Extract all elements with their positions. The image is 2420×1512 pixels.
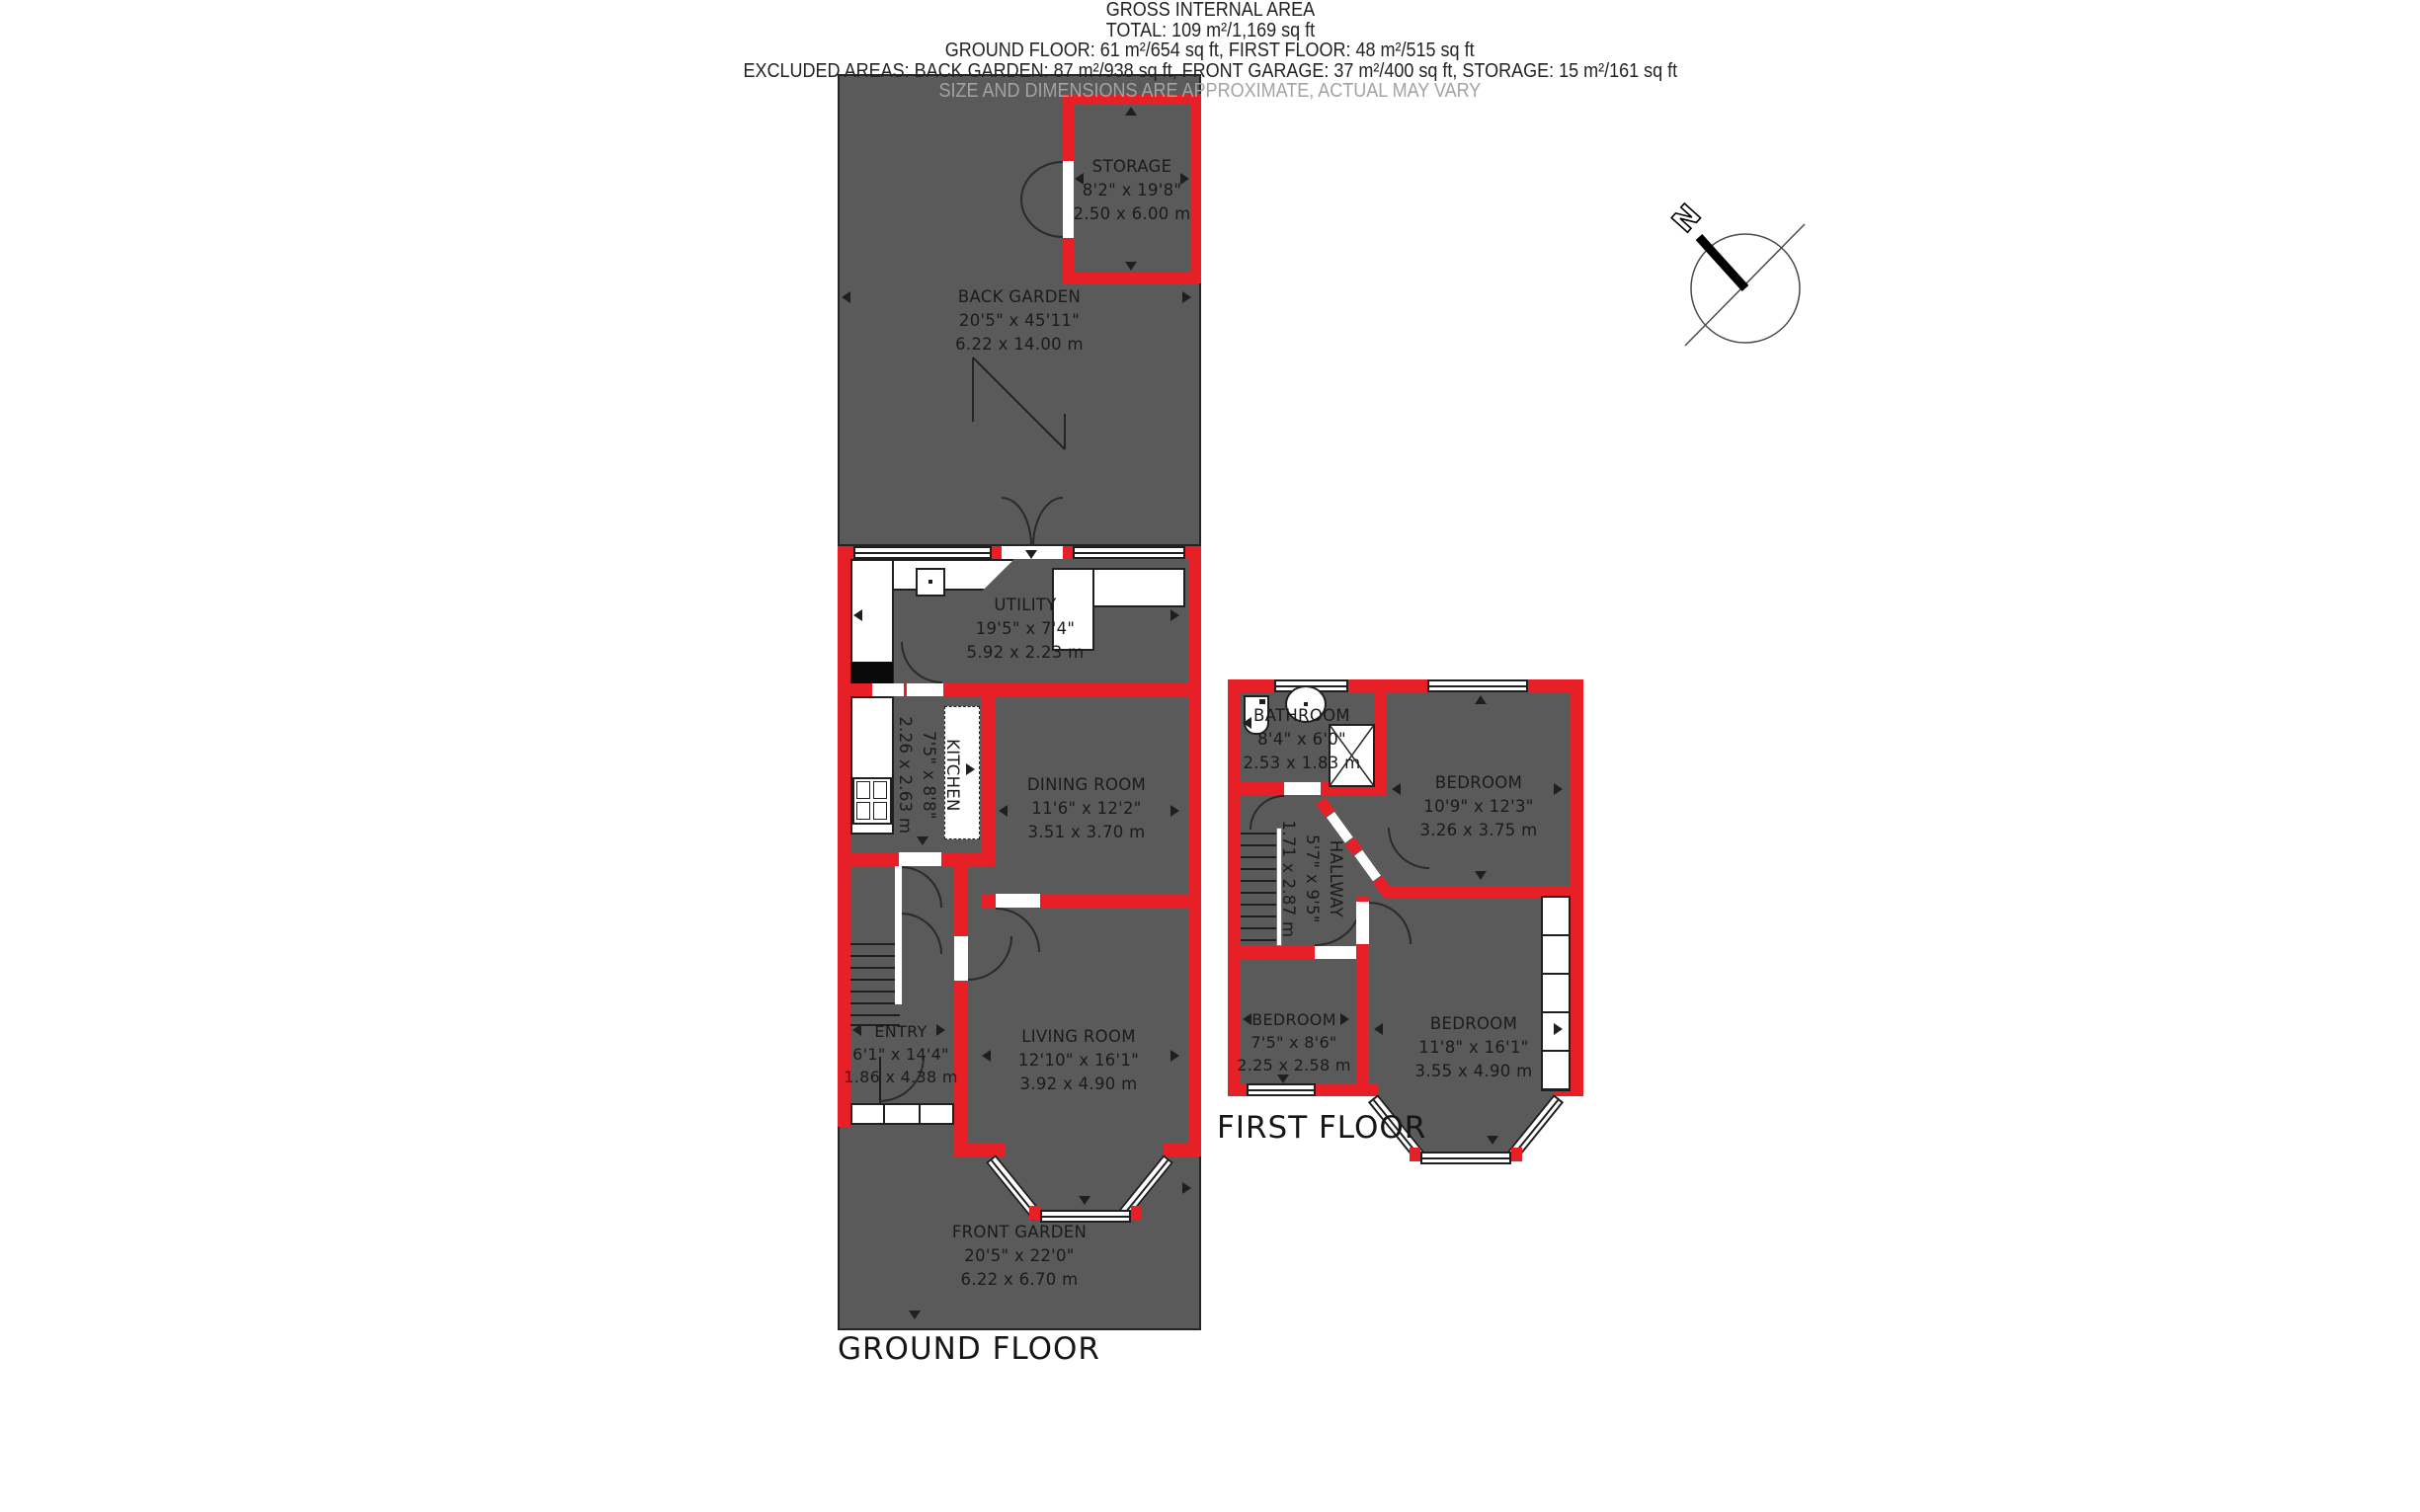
dimension-arrow: [909, 1311, 921, 1319]
dimension-arrow: [1243, 1013, 1251, 1025]
room-label-bathroom: BATHROOM 8'4" x 6'0" 2.53 x 1.83 m: [1213, 704, 1391, 775]
stair-rail: [895, 866, 902, 1004]
dimension-arrow: [852, 1024, 861, 1036]
room-dim-metric: 2.50 x 6.00 m: [1053, 202, 1211, 226]
stove-burner: [856, 802, 870, 820]
room-label-bedroom-1: BEDROOM 10'9" x 12'3" 3.26 x 3.75 m: [1340, 771, 1617, 842]
entry-living-wall: [954, 866, 968, 1156]
dimension-arrow: [982, 1050, 991, 1062]
floorplan-page: { "titles": { "ground_floor": "GROUND FL…: [0, 0, 2420, 1512]
dimension-arrow: [1180, 173, 1189, 185]
area-summary: GROSS INTERNAL AREA TOTAL: 109 m²/1,169 …: [0, 0, 2420, 102]
dimension-arrow: [1340, 1013, 1349, 1025]
dimension-arrow: [1182, 291, 1191, 303]
front-door-divider: [919, 1103, 921, 1125]
total-area: TOTAL: 109 m²/1,169 sq ft: [1105, 21, 1314, 41]
dimension-arrow: [1554, 1023, 1563, 1035]
disclaimer: SIZE AND DIMENSIONS ARE APPROXIMATE, ACT…: [939, 81, 1482, 102]
dimension-arrow: [1475, 871, 1487, 880]
living-bottom-wall: [968, 1144, 1006, 1156]
dimension-arrow: [1170, 609, 1179, 621]
dimension-arrow: [1025, 550, 1037, 559]
room-dim-metric: 3.51 x 3.70 m: [948, 821, 1225, 844]
bay-nub: [1511, 1148, 1522, 1161]
dimension-arrow: [1475, 695, 1487, 704]
room-dim-metric: 5.92 x 2.23 m: [887, 641, 1164, 665]
room-dim-imperial: 10'9" x 12'3": [1340, 795, 1617, 819]
dimension-arrow: [917, 836, 928, 845]
bay-window: [1420, 1152, 1511, 1164]
room-dim-imperial: 8'4" x 6'0": [1213, 728, 1391, 752]
door-opening: [872, 683, 904, 696]
front-door-divider: [883, 1103, 885, 1125]
room-dim-imperial: 11'6" x 12'2": [948, 797, 1225, 821]
bathroom-door-opening: [1284, 782, 1321, 795]
living-door-opening: [954, 936, 968, 981]
dimension-arrow: [1125, 107, 1137, 116]
dimension-arrow: [1125, 262, 1137, 271]
room-dim-imperial: 11'8" x 16'1": [1335, 1036, 1612, 1060]
ground-floor-title: GROUND FLOOR: [838, 1331, 1100, 1367]
dimension-arrow: [999, 805, 1008, 817]
utility-window: [1073, 546, 1185, 559]
compass-north-label: N: [1666, 199, 1709, 240]
room-name: BATHROOM: [1213, 704, 1391, 728]
dimension-arrow: [1079, 1196, 1090, 1205]
room-name: BEDROOM: [1340, 771, 1617, 795]
room-name: DINING ROOM: [948, 773, 1225, 797]
dimension-arrow: [1554, 783, 1563, 795]
floor-areas: GROUND FLOOR: 61 m²/654 sq ft, FIRST FLO…: [945, 40, 1475, 61]
room-dim-imperial: 20'5" x 45'11": [881, 309, 1158, 333]
dimension-arrow: [842, 291, 850, 303]
room-dim-metric: 6.22 x 6.70 m: [881, 1268, 1158, 1292]
room-dim-metric: 2.26 x 2.63 m: [893, 711, 917, 839]
dimension-arrow: [936, 1024, 945, 1036]
room-label-back-garden: BACK GARDEN 20'5" x 45'11" 6.22 x 14.00 …: [881, 285, 1158, 357]
room-dim-imperial: 5'7" x 9'5": [1300, 815, 1324, 943]
kitchen-door-opening: [899, 852, 941, 866]
wall-nub: [838, 1103, 850, 1127]
dimension-arrow: [1374, 1023, 1383, 1035]
room-name: FRONT GARDEN: [881, 1221, 1158, 1244]
bay-nub: [1029, 1206, 1040, 1220]
room-name: LIVING ROOM: [940, 1025, 1217, 1049]
door-opening: [907, 683, 943, 696]
bedroom-window: [1427, 679, 1528, 692]
stove-burner: [873, 802, 887, 820]
sink-tap: [928, 580, 932, 584]
room-dim-metric: 3.92 x 4.90 m: [940, 1073, 1217, 1096]
dimension-arrow: [1487, 1136, 1498, 1145]
room-dim-metric: 1.71 x 2.87 m: [1276, 815, 1300, 943]
room-label-front-garden: FRONT GARDEN 20'5" x 22'0" 6.22 x 6.70 m: [881, 1221, 1158, 1292]
room-dim-imperial: 19'5" x 7'4": [887, 617, 1164, 641]
dimension-arrow: [1182, 1182, 1191, 1194]
living-bottom-wall: [1164, 1144, 1201, 1156]
dimension-arrow: [1075, 173, 1084, 185]
dining-door-opening: [996, 894, 1040, 908]
room-dim-metric: 3.55 x 4.90 m: [1335, 1060, 1612, 1083]
bedroom2-window: [1247, 1083, 1316, 1096]
bay-nub: [1410, 1148, 1420, 1161]
room-label-hallway: HALLWAY 5'7" x 9'5" 1.71 x 2.87 m: [1276, 815, 1347, 943]
dimension-arrow: [1170, 1050, 1179, 1062]
hallway-door-opening: [1315, 946, 1361, 959]
room-label-storage: STORAGE 8'2" x 19'8" 2.50 x 6.00 m: [1053, 155, 1211, 226]
room-name: HALLWAY: [1324, 815, 1347, 943]
utility-window: [853, 546, 992, 559]
bedroom3-door-opening: [1356, 902, 1369, 944]
room-dim-imperial: 20'5" x 22'0": [881, 1244, 1158, 1268]
room-dim-metric: 6.22 x 14.00 m: [881, 333, 1158, 357]
room-label-dining-room: DINING ROOM 11'6" x 12'2" 3.51 x 3.70 m: [948, 773, 1225, 844]
dimension-arrow: [853, 609, 862, 621]
bay-nub: [1131, 1206, 1142, 1220]
first-floor-plan: BATHROOM 8'4" x 6'0" 2.53 x 1.83 m BEDRO…: [1228, 679, 1583, 1173]
room-name: BACK GARDEN: [881, 285, 1158, 309]
stove-burner: [873, 781, 887, 799]
dimension-arrow: [966, 763, 975, 775]
ground-floor-stairs: [850, 943, 900, 1026]
compass-icon: N: [1655, 194, 1843, 381]
gross-internal-area-heading: GROSS INTERNAL AREA: [1105, 0, 1314, 21]
stove-burner: [856, 781, 870, 799]
first-floor-title: FIRST FLOOR: [1217, 1110, 1426, 1146]
ground-floor-plan: BACK GARDEN 20'5" x 45'11" 6.22 x 14.00 …: [838, 74, 1201, 1333]
first-floor-stairs: [1241, 833, 1276, 943]
front-door: [850, 1103, 954, 1125]
dimension-arrow: [1243, 717, 1251, 729]
excluded-areas: EXCLUDED AREAS: BACK GARDEN: 87 m²/938 s…: [743, 61, 1677, 82]
dimension-arrow: [1170, 805, 1179, 817]
room-name: UTILITY: [887, 594, 1164, 617]
room-dim-metric: 3.26 x 3.75 m: [1340, 819, 1617, 842]
room-label-utility: UTILITY 19'5" x 7'4" 5.92 x 2.23 m: [887, 594, 1164, 665]
dimension-arrow: [1277, 1074, 1289, 1083]
room-dim-imperial: 7'5" x 8'8": [917, 711, 940, 839]
dimension-arrow: [1392, 783, 1401, 795]
